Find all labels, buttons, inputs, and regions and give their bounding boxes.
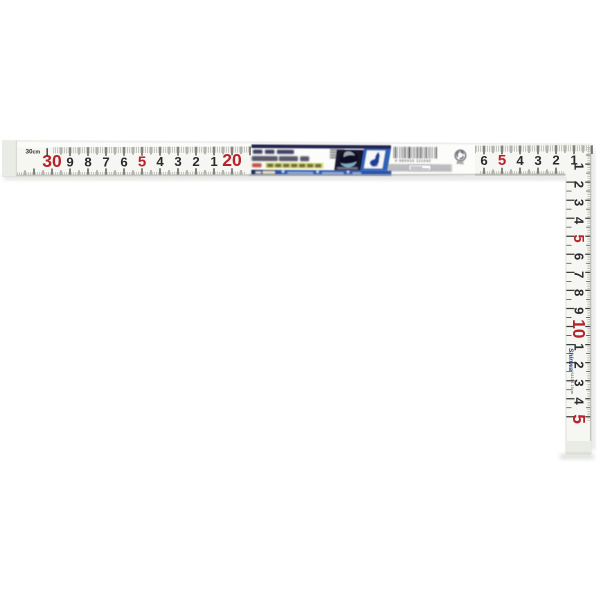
- svg-text:1: 1: [210, 154, 217, 169]
- svg-text:3: 3: [534, 153, 541, 168]
- svg-text:5: 5: [570, 234, 587, 242]
- svg-text:4: 4: [572, 217, 587, 225]
- svg-text:PVC: PVC: [457, 161, 465, 165]
- svg-text:2: 2: [552, 153, 559, 168]
- svg-text:5: 5: [569, 414, 589, 424]
- svg-text:6: 6: [120, 154, 127, 169]
- svg-text:3: 3: [572, 199, 587, 206]
- svg-text:1: 1: [572, 163, 587, 170]
- svg-text:6: 6: [572, 253, 587, 260]
- svg-text:9: 9: [66, 155, 73, 170]
- svg-text:2: 2: [572, 181, 587, 188]
- svg-text:2: 2: [192, 154, 199, 169]
- svg-text:3: 3: [174, 154, 181, 169]
- svg-text:Shinwa: Shinwa: [567, 348, 574, 371]
- svg-text:7: 7: [572, 271, 587, 278]
- svg-text:#11104 15cm: #11104 15cm: [570, 371, 575, 395]
- svg-text:4: 4: [156, 154, 164, 169]
- svg-text:4: 4: [516, 153, 524, 168]
- svg-text:4 960910 111042: 4 960910 111042: [395, 159, 431, 163]
- svg-text:5: 5: [498, 152, 506, 169]
- svg-text:5: 5: [138, 153, 146, 170]
- svg-text:6: 6: [480, 153, 487, 168]
- svg-text:9: 9: [572, 307, 587, 314]
- svg-text:8: 8: [84, 155, 91, 170]
- svg-text:8: 8: [572, 289, 587, 296]
- svg-text:30: 30: [42, 151, 62, 171]
- svg-text:20: 20: [222, 150, 242, 170]
- svg-text:7: 7: [102, 155, 109, 170]
- svg-text:30cm: 30cm: [26, 149, 41, 156]
- svg-text:4: 4: [572, 397, 587, 405]
- svg-text:10: 10: [569, 319, 589, 339]
